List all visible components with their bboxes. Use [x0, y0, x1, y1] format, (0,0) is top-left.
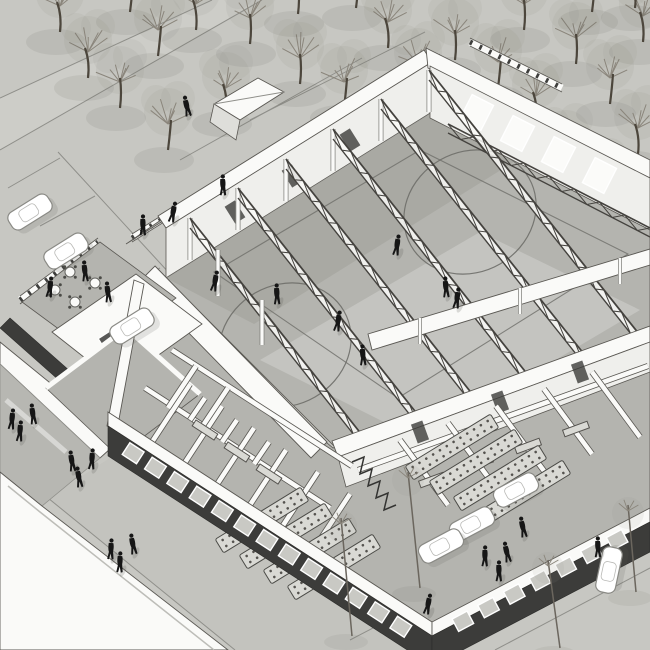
tree-shadow: [86, 105, 146, 131]
tree-trunk: [120, 78, 121, 108]
chair: [99, 276, 102, 279]
tree-shadow: [264, 11, 324, 37]
tree-trunk: [298, 0, 299, 14]
sapling-shadow: [608, 590, 650, 606]
architectural-rendering-canvas: [0, 0, 650, 650]
chair: [79, 295, 82, 298]
tree-shadow: [134, 147, 194, 173]
axonometric-scene: [0, 0, 650, 650]
chair: [88, 287, 91, 290]
tree-trunk: [524, 0, 525, 30]
tree-shadow: [26, 29, 86, 55]
tree-trunk: [250, 14, 251, 44]
tree-shadow: [124, 53, 184, 79]
chair: [59, 294, 62, 297]
table-top: [90, 278, 100, 288]
person-head: [141, 214, 145, 218]
sapling-shadow: [324, 634, 368, 650]
tree-canopy: [391, 25, 421, 55]
tree-trunk: [455, 30, 456, 60]
tree-shadow: [490, 27, 550, 53]
chair: [68, 306, 71, 309]
chair: [99, 287, 102, 290]
cafe-table: [68, 295, 82, 309]
tree-shadow: [96, 9, 156, 35]
chair: [74, 265, 77, 268]
person-head: [497, 560, 501, 564]
tree-canopy: [317, 43, 347, 73]
chair: [63, 276, 66, 279]
chair: [68, 295, 71, 298]
tree-canopy: [583, 39, 613, 69]
sapling-canopy: [392, 464, 424, 496]
sapling-canopy: [532, 552, 564, 584]
chair: [59, 283, 62, 286]
tree-canopy: [93, 43, 123, 73]
table-top: [70, 297, 80, 307]
tree-trunk: [576, 34, 577, 64]
tree-shadow: [322, 5, 382, 31]
tree-canopy: [199, 49, 229, 79]
tree-trunk: [300, 54, 301, 84]
chair: [79, 306, 82, 309]
chair: [74, 276, 77, 279]
